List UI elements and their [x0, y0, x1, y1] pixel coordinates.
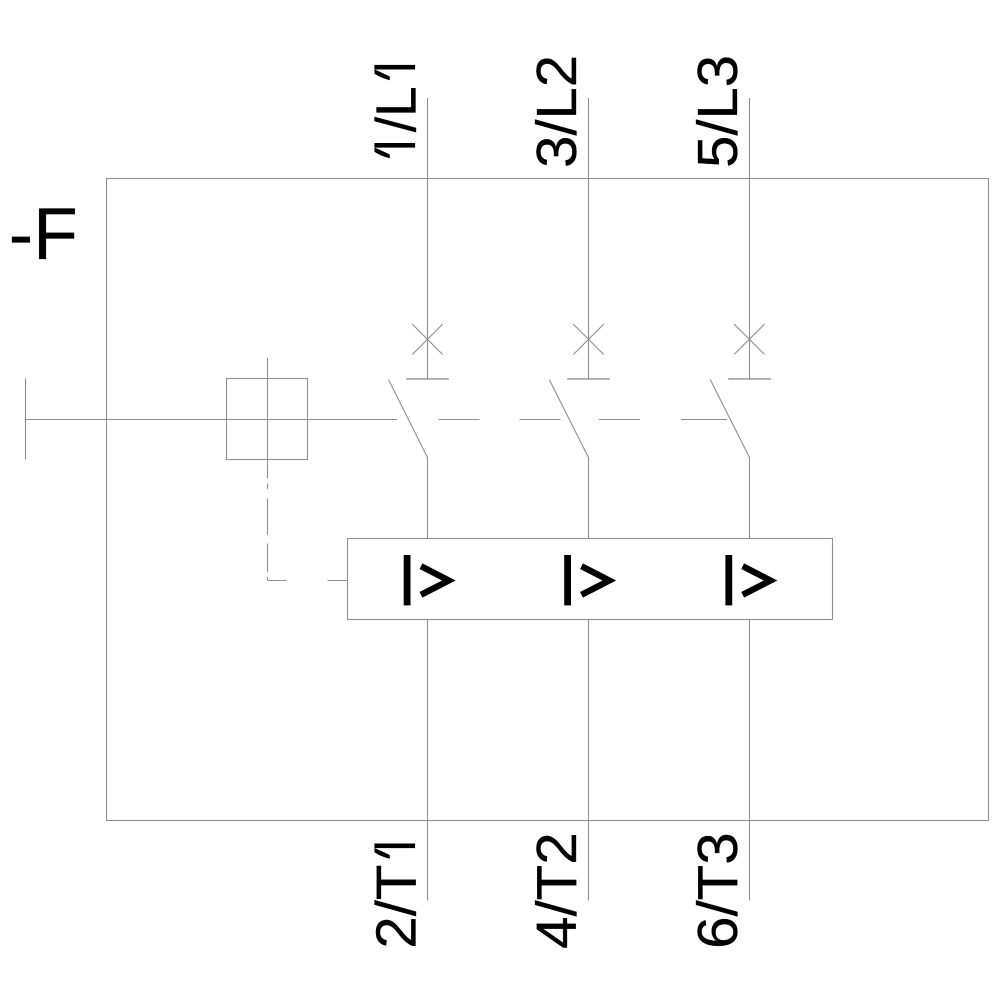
svg-text:6/T3: 6/T3	[686, 832, 750, 949]
svg-text:5/L3: 5/L3	[686, 55, 750, 168]
svg-text:/L: /L	[365, 86, 429, 132]
svg-text:4/T2: 4/T2	[525, 832, 589, 949]
svg-text:-F: -F	[9, 193, 78, 275]
svg-text:3/L2: 3/L2	[525, 55, 589, 168]
svg-text:2/T: 2/T	[365, 865, 429, 949]
